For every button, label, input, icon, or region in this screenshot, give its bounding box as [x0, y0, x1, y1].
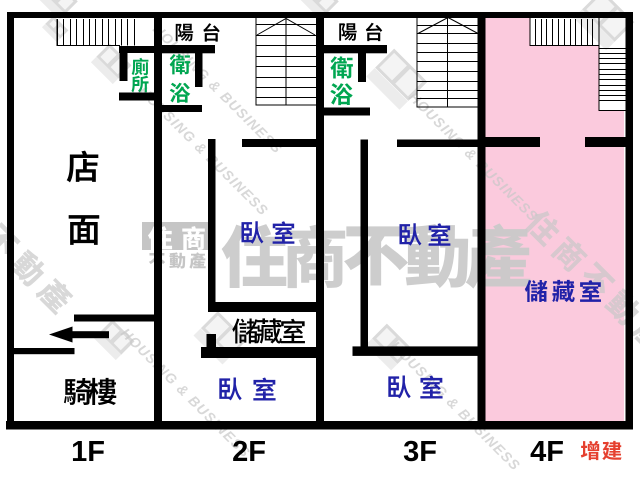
svg-text:1F: 1F	[71, 436, 105, 468]
svg-text:4F: 4F	[530, 436, 564, 468]
svg-text:HOUSING & BUSINESS: HOUSING & BUSINESS	[150, 21, 286, 157]
svg-text:3F: 3F	[403, 436, 437, 468]
svg-text:2F: 2F	[232, 436, 266, 468]
